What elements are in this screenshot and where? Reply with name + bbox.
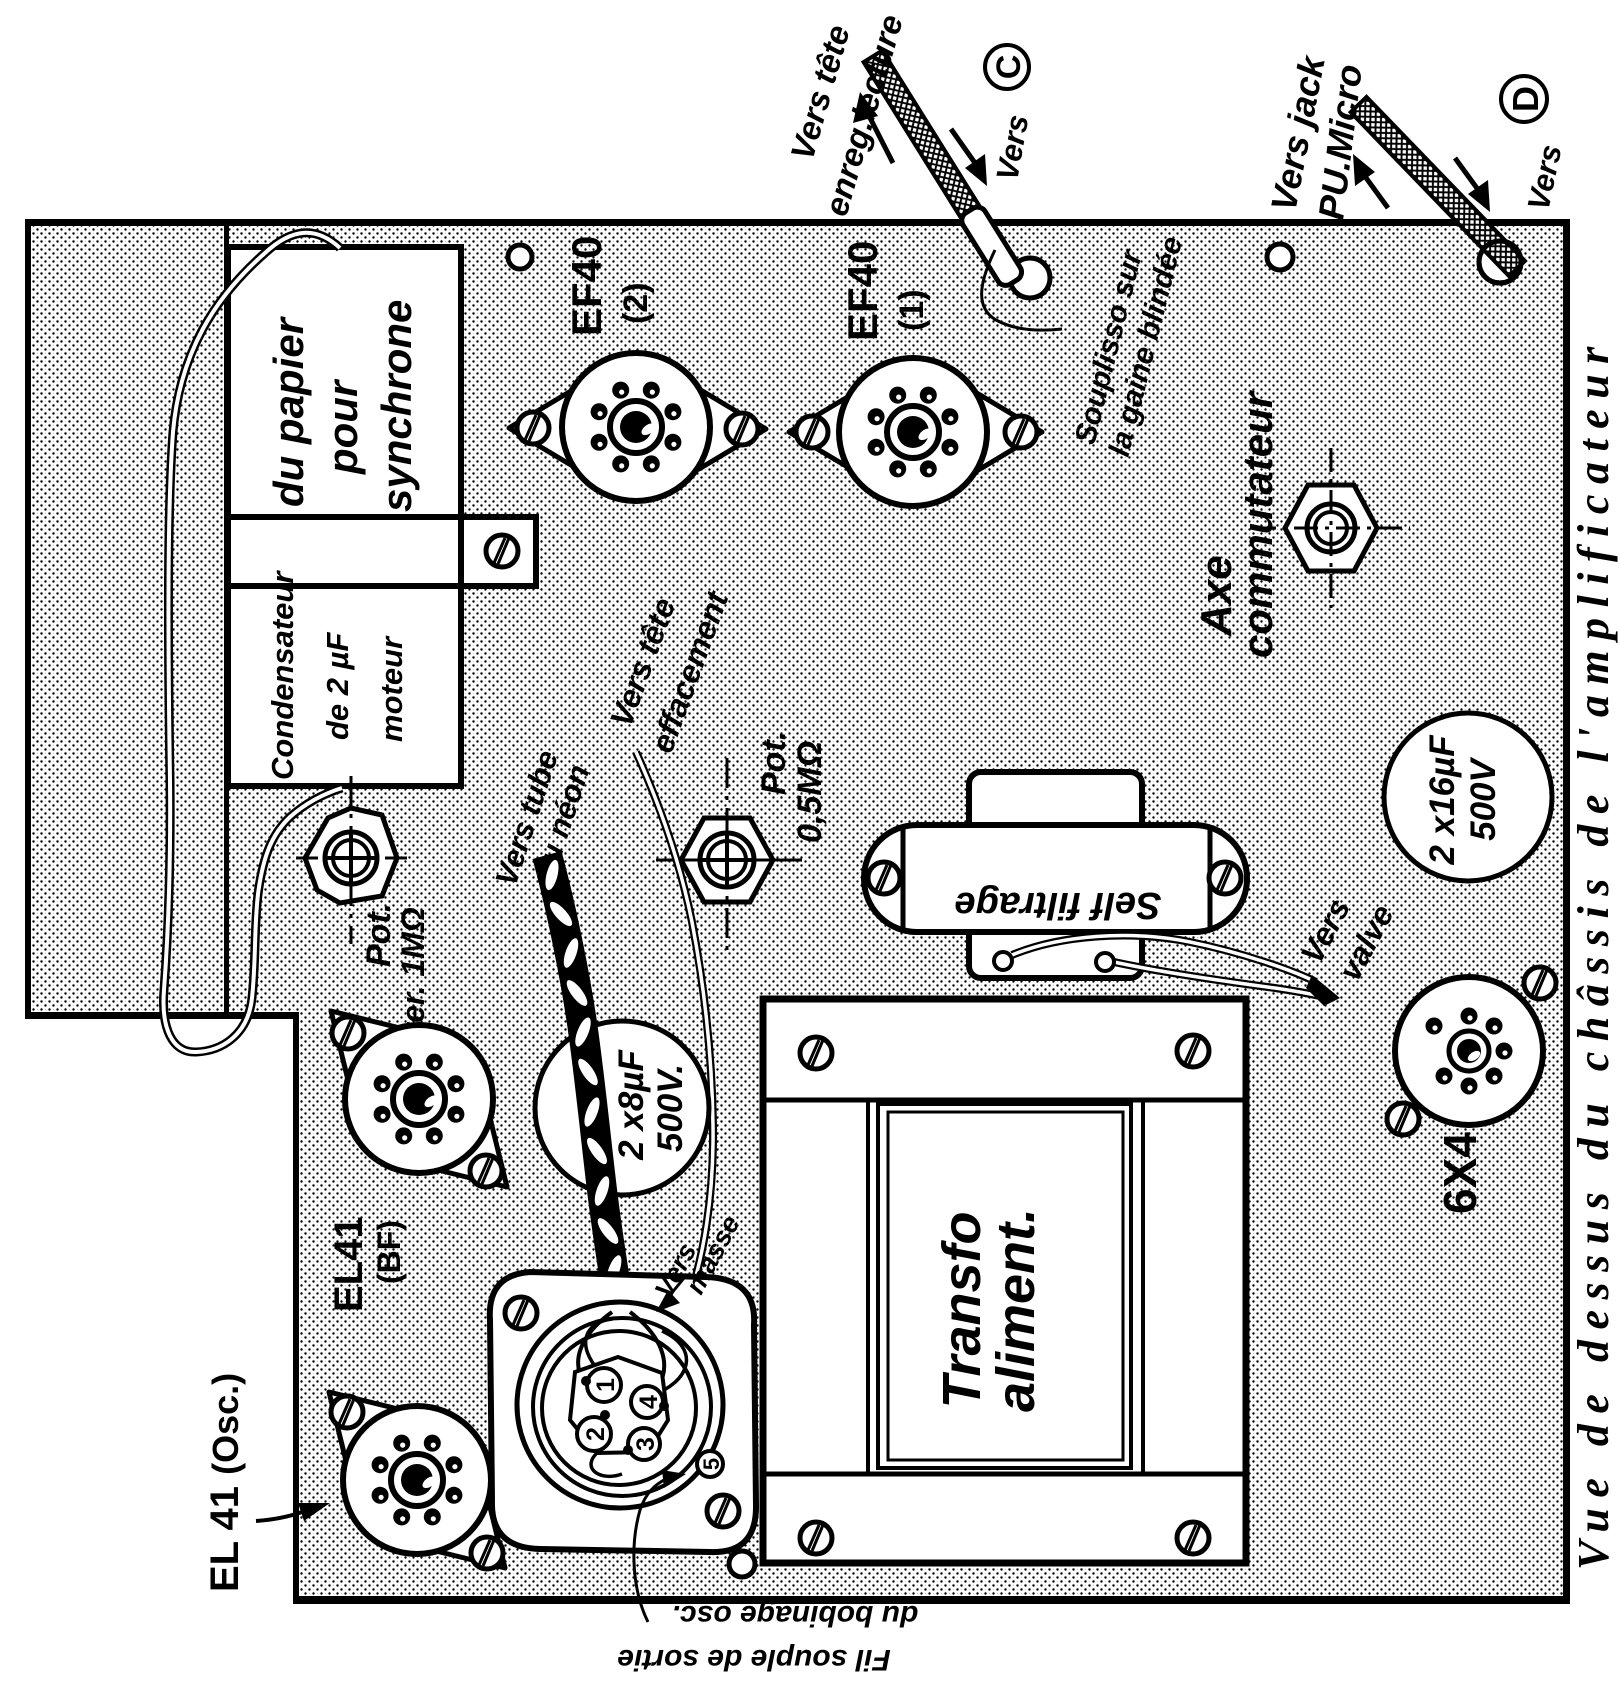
svg-text:Self filtrage: Self filtrage bbox=[955, 884, 1162, 926]
svg-text:du bobinage osc.: du bobinage osc. bbox=[672, 1599, 919, 1632]
svg-text:pour: pour bbox=[319, 378, 366, 475]
svg-text:EL 41 (Osc.): EL 41 (Osc.) bbox=[203, 1373, 247, 1592]
svg-text:D: D bbox=[1505, 86, 1546, 112]
svg-text:aliment.: aliment. bbox=[986, 1208, 1046, 1412]
svg-text:EF40: EF40 bbox=[563, 236, 610, 336]
svg-text:2 x8µF: 2 x8µF bbox=[612, 1049, 651, 1161]
svg-text:4: 4 bbox=[635, 1395, 663, 1409]
svg-text:commutateur: commutateur bbox=[1234, 389, 1281, 658]
svg-text:moteur: moteur bbox=[374, 635, 409, 742]
svg-text:de 2 µF: de 2 µF bbox=[320, 631, 355, 740]
svg-text:Fil souple de sortie: Fil souple de sortie bbox=[617, 1643, 890, 1676]
svg-text:Condensateur: Condensateur bbox=[265, 570, 300, 780]
svg-text:C: C bbox=[990, 55, 1028, 80]
svg-text:Pot.: Pot. bbox=[360, 903, 398, 967]
svg-text:Vue de dessus du châssis de l': Vue de dessus du châssis de l'amplificat… bbox=[1569, 336, 1618, 1570]
svg-text:Transfo: Transfo bbox=[932, 1211, 992, 1408]
svg-text:1: 1 bbox=[592, 1378, 620, 1392]
svg-text:500V.: 500V. bbox=[651, 1064, 690, 1152]
svg-text:2 x16µF: 2 x16µF bbox=[1423, 734, 1462, 866]
svg-text:EF40: EF40 bbox=[839, 241, 886, 341]
svg-text:6X4: 6X4 bbox=[1434, 1132, 1486, 1214]
svg-text:3: 3 bbox=[632, 1437, 660, 1451]
svg-text:Pot.: Pot. bbox=[755, 731, 793, 795]
svg-text:synchrone: synchrone bbox=[373, 300, 420, 512]
svg-text:EL41: EL41 bbox=[327, 1216, 371, 1312]
svg-text:(BF): (BF) bbox=[371, 1220, 407, 1284]
svg-text:(1): (1) bbox=[893, 289, 931, 331]
svg-text:500V: 500V bbox=[1464, 756, 1503, 840]
svg-text:0,5MΩ: 0,5MΩ bbox=[791, 741, 829, 843]
svg-text:du papier: du papier bbox=[265, 315, 312, 507]
svg-text:(2): (2) bbox=[617, 282, 655, 324]
svg-text:2: 2 bbox=[582, 1427, 610, 1441]
svg-text:5: 5 bbox=[699, 1458, 724, 1470]
